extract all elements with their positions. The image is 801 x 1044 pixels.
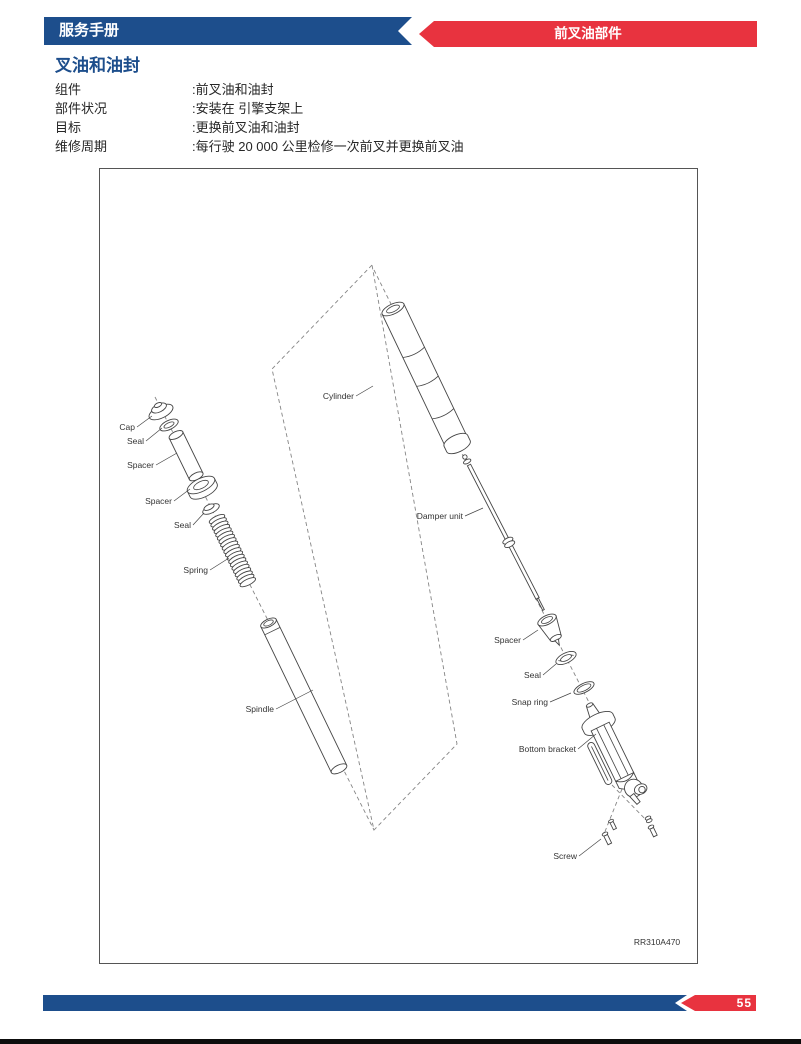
header-right-banner-label: 前叉油部件 [554,26,622,41]
cylinder-axis-dashed [374,270,391,304]
cylinder-part [379,299,472,457]
spindle-part [259,616,348,776]
spacer-tube-part [168,429,205,483]
page-bottom-edge [0,1039,801,1044]
cylinder-label: Cylinder [323,391,354,401]
bottom-bracket-label: Bottom bracket [519,744,577,754]
info-row-condition: 部件状况 :安装在 引擎支架上 [55,99,755,118]
lower-spacer-part [536,612,568,650]
info-table: 组件 :前叉油和油封 部件状况 :安装在 引擎支架上 目标 :更换前叉油和油封 … [55,80,755,156]
manual-page: 服务手册 前叉油部件 叉油和油封 组件 :前叉油和油封 部件状况 :安装在 引擎… [0,0,801,1044]
spindle-label: Spindle [246,704,275,714]
diagram-labels: Cap Seal Spacer Spacer Seal Spring Spind… [119,386,680,947]
info-value: :每行驶 20 000 公里检修一次前叉并更换前叉油 [192,137,464,156]
info-label: 组件 [55,80,192,99]
upper-seal-label: Seal [127,436,144,446]
info-label: 维修周期 [55,137,192,156]
mid-seal-part [201,501,221,517]
cap-label: Cap [119,422,135,432]
header-right-banner: 前叉油部件 [419,21,757,47]
footer-blue-bar [43,995,687,1011]
footer-page-banner: 55 [681,995,756,1011]
info-value: :前叉油和油封 [192,80,274,99]
exploded-diagram-frame: Cap Seal Spacer Spacer Seal Spring Spind… [99,168,698,964]
info-value: :更换前叉油和油封 [192,118,300,137]
info-label: 部件状况 [55,99,192,118]
spacer-ring-label: Spacer [145,496,172,506]
fork-exploded-diagram: Cap Seal Spacer Spacer Seal Spring Spind… [100,169,697,963]
footer-page-number: 55 [737,996,752,1010]
info-label: 目标 [55,118,192,137]
bottom-bracket-part [571,696,653,813]
damper-unit-part [459,453,548,613]
spring-label: Spring [183,565,208,575]
diagram-ref-code: RR310A470 [634,937,681,947]
fork-outline-dashed [272,265,457,830]
damper-unit-label: Damper unit [417,511,464,521]
spring-part [208,513,257,589]
lower-spacer-label: Spacer [494,635,521,645]
info-row-component: 组件 :前叉油和油封 [55,80,755,99]
header-left-banner: 服务手册 [44,17,412,45]
snap-ring-part [572,679,596,697]
spacer-tube-label: Spacer [127,460,154,470]
info-row-interval: 维修周期 :每行驶 20 000 公里检修一次前叉并更换前叉油 [55,137,755,156]
snap-ring-label: Snap ring [512,697,549,707]
screw-parts [602,815,658,845]
info-value: :安装在 引擎支架上 [192,99,303,118]
info-row-target: 目标 :更换前叉油和油封 [55,118,755,137]
mid-seal-label: Seal [174,520,191,530]
lower-seal-label: Seal [524,670,541,680]
screw-label: Screw [553,851,577,861]
lower-seal-part [554,649,578,668]
header-left-banner-label: 服务手册 [59,22,119,39]
page-title: 叉油和油封 [55,51,140,76]
